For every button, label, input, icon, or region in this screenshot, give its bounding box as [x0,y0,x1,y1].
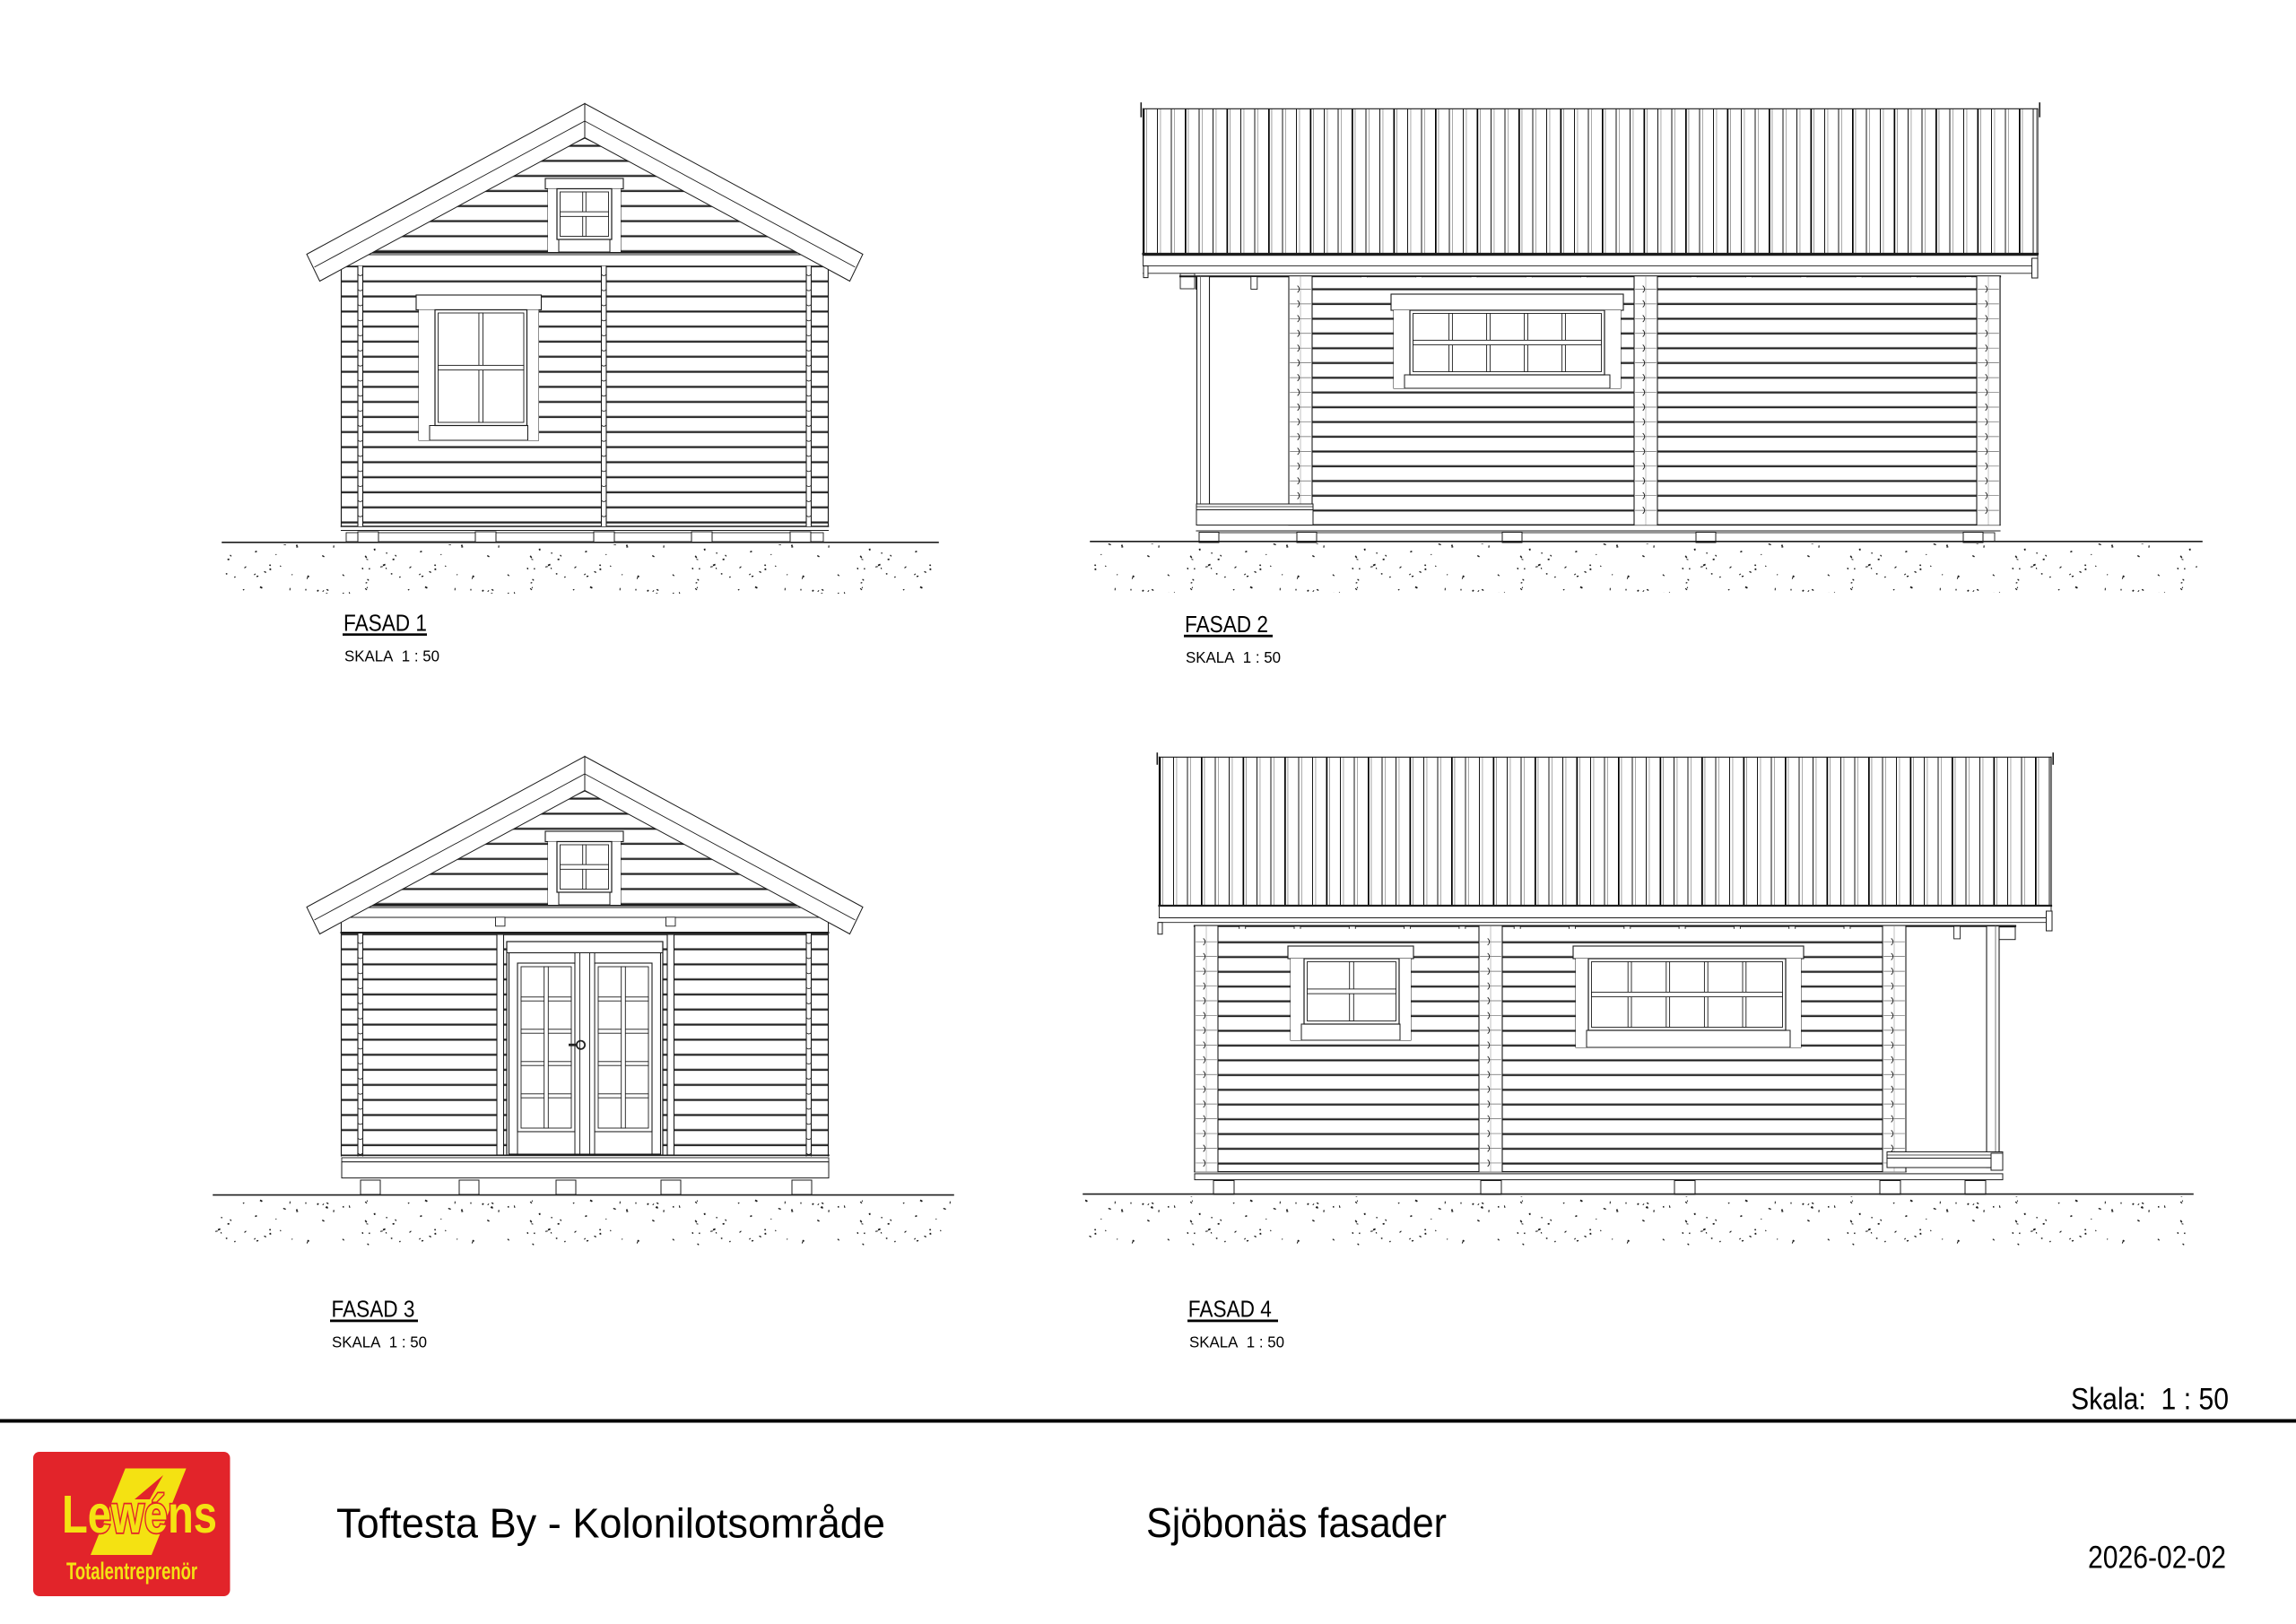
svg-text:Sjöbonäs fasader: Sjöbonäs fasader [1146,1499,1447,1546]
svg-text:2026-02-02: 2026-02-02 [2088,1541,2226,1576]
svg-text:FASAD 4: FASAD 4 [1188,1296,1272,1323]
svg-text:FASAD 1: FASAD 1 [344,609,427,636]
svg-text:Skala: 1 : 50: Skala: 1 : 50 [2071,1383,2229,1417]
svg-text:SKALA 1 : 50: SKALA 1 : 50 [332,1333,427,1351]
svg-text:FASAD 2: FASAD 2 [1185,611,1268,638]
svg-text:Totalentreprenör: Totalentreprenör [66,1558,197,1585]
svg-text:SKALA 1 : 50: SKALA 1 : 50 [1189,1333,1284,1351]
svg-text:SKALA 1 : 50: SKALA 1 : 50 [344,647,439,664]
svg-text:Toftesta By - Kolonilotsområde: Toftesta By - Kolonilotsområde [336,1500,885,1547]
svg-text:FASAD 3: FASAD 3 [332,1296,415,1323]
svg-text:Lewéns: Lewéns [62,1485,217,1544]
svg-text:SKALA 1 : 50: SKALA 1 : 50 [1186,648,1281,666]
